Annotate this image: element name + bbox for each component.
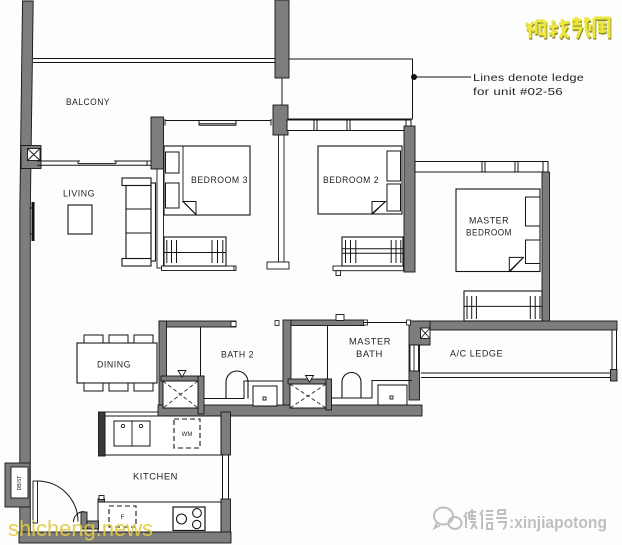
svg-text:BEDROOM 3: BEDROOM 3 [191, 175, 248, 185]
svg-text:KITCHEN: KITCHEN [133, 472, 178, 482]
svg-text::xinjiapotong: :xinjiapotong [509, 514, 607, 532]
svg-text:BATH: BATH [356, 349, 383, 359]
svg-text:DB/ST: DB/ST [17, 476, 23, 491]
svg-text:A/C LEDGE: A/C LEDGE [450, 349, 503, 359]
svg-text:Lines denote ledge: Lines denote ledge [473, 72, 584, 84]
svg-text:WM: WM [182, 432, 193, 438]
svg-text:MASTER: MASTER [349, 337, 391, 347]
svg-text:MASTER: MASTER [469, 216, 509, 226]
svg-text:shicheng.news: shicheng.news [8, 516, 153, 541]
svg-text:BALCONY: BALCONY [66, 97, 110, 107]
svg-text:LIVING: LIVING [63, 189, 95, 199]
svg-text:BATH 2: BATH 2 [221, 350, 254, 360]
svg-text:for unit #02-56: for unit #02-56 [473, 86, 563, 98]
svg-text:BEDROOM 2: BEDROOM 2 [323, 175, 379, 185]
svg-text:BEDROOM: BEDROOM [466, 228, 512, 238]
svg-text:DINING: DINING [97, 360, 131, 370]
